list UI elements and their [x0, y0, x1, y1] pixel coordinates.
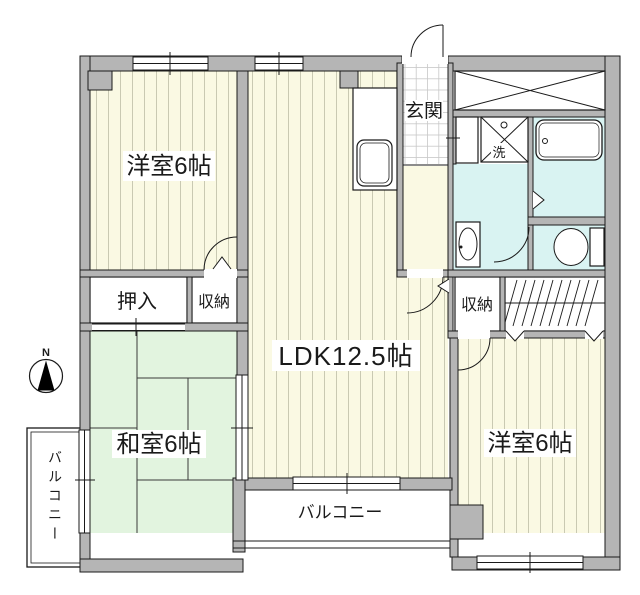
entrance-door-icon: [411, 25, 443, 57]
oshiire-label: 押入: [117, 290, 157, 313]
storage-left-label: 収納: [198, 293, 230, 311]
entrance-opening: [402, 55, 448, 64]
hallway-floor: [403, 166, 448, 270]
hatched-closet: [504, 277, 605, 331]
floor-plan-canvas: 洋室6帖 LDK12.5帖 玄関 押入 収納 収納 和室6帖 洋室6帖 洗 バル…: [0, 0, 640, 595]
dead-space-box: [455, 71, 605, 110]
kitchen-sink-icon: [353, 88, 397, 190]
storage-right-label: 収納: [461, 296, 493, 314]
compass-n-label: N: [42, 347, 50, 359]
bedroom-nw-label: 洋室6帖: [126, 153, 211, 180]
bedroom-se-label: 洋室6帖: [487, 430, 572, 457]
ldk-floor-lower: [248, 277, 448, 478]
entrance-label: 玄関: [405, 100, 443, 122]
ldk-label: LDK12.5帖: [278, 341, 413, 371]
shoe-cabinet-icon: [456, 117, 478, 163]
bathtub-icon: [536, 120, 602, 160]
washbasin-icon: [456, 222, 480, 267]
toilet-icon: [554, 228, 604, 266]
compass-icon: N: [30, 347, 63, 393]
laundry-label: 洗: [492, 145, 505, 160]
balcony-bottom-label: バルコニー: [298, 503, 383, 522]
washitsu-label: 和室6帖: [116, 431, 201, 458]
washitsu-edge-strip: [88, 533, 237, 559]
balcony-left-label: バルコニー: [47, 450, 63, 545]
floor-plan: 洋室6帖 LDK12.5帖 玄関 押入 収納 収納 和室6帖 洋室6帖 洗 バル…: [0, 0, 640, 595]
balcony-railing: [233, 541, 450, 548]
